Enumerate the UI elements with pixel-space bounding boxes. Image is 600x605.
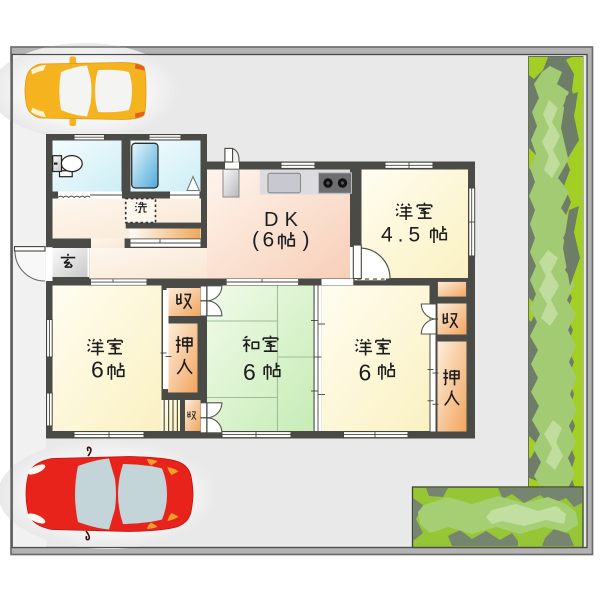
svg-text:6: 6 — [359, 360, 372, 386]
svg-text:(: ( — [252, 229, 259, 252]
svg-text:6: 6 — [91, 357, 104, 383]
svg-text:): ) — [303, 229, 310, 252]
svg-text:6: 6 — [263, 229, 275, 252]
svg-text:4.5: 4.5 — [381, 224, 425, 247]
svg-text:6: 6 — [243, 359, 256, 385]
